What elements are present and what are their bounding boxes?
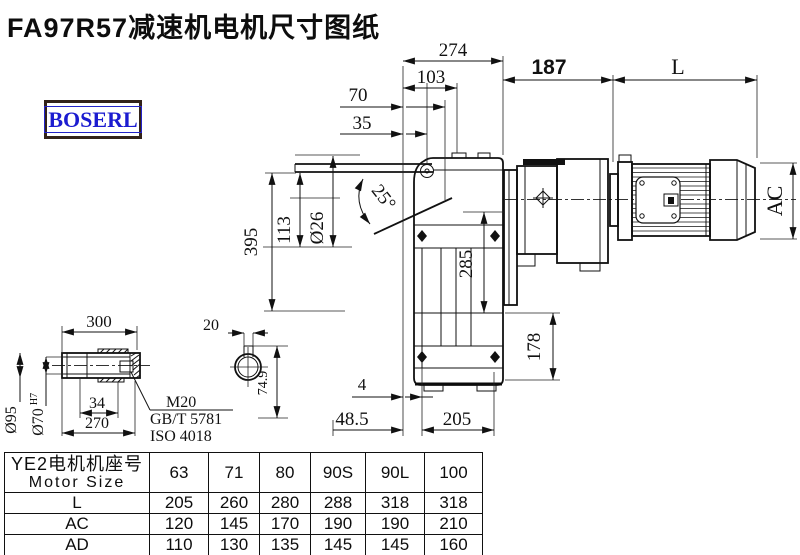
bolt-mark-top-left: [417, 230, 427, 242]
dim-20-label: 20: [203, 317, 219, 334]
bolt-note-gbt: GB/T 5781: [150, 411, 222, 428]
cell-AD-90L: 145: [366, 535, 425, 555]
dim-70-label: 70: [349, 85, 368, 106]
cell-AC-90S: 190: [311, 514, 366, 535]
dim-74-9-label: 74.9: [256, 371, 271, 396]
cell-L-63: 205: [150, 493, 209, 514]
cell-L-90S: 288: [311, 493, 366, 514]
table-row-L: L 205 260 280 288 318 318: [5, 493, 483, 514]
col-90S: 90S: [311, 453, 366, 493]
table-header-en: Motor Size: [5, 474, 149, 491]
cell-AD-63: 110: [150, 535, 209, 555]
cell-AC-71: 145: [209, 514, 260, 535]
r57-foot: [580, 263, 600, 271]
cell-L-71: 260: [209, 493, 260, 514]
col-100: 100: [425, 453, 483, 493]
table-row-AC: AC 120 145 170 190 190 210: [5, 514, 483, 535]
col-90L: 90L: [366, 453, 425, 493]
angle-arc-25: [359, 179, 370, 224]
dim-285-label: 285: [456, 250, 477, 279]
dim-4-label: 4: [358, 375, 367, 394]
dim-phi95-label: Ø95: [3, 406, 20, 434]
motor-flange-bell: [618, 162, 632, 240]
col-71: 71: [209, 453, 260, 493]
dim-phi70-label: Ø70: [30, 408, 47, 436]
table-header-cn: YE2电机机座号: [5, 455, 149, 474]
dim-phi70-tolerance-label: H7: [29, 393, 40, 405]
cell-AD-80: 135: [260, 535, 311, 555]
r57-flange-plate: [504, 170, 517, 305]
table-header-cell: YE2电机机座号 Motor Size: [5, 453, 150, 493]
col-63: 63: [150, 453, 209, 493]
dim-35-label: 35: [353, 113, 372, 134]
motor-fan-cowl: [710, 160, 755, 240]
drawing-sheet: FA97R57减速机电机尺寸图纸 BOSERL: [0, 0, 800, 555]
dim-48-5-label: 48.5: [335, 409, 368, 430]
dim-395-label: 395: [241, 228, 262, 257]
cell-AC-63: 120: [150, 514, 209, 535]
plate-detail-dot: [668, 197, 674, 204]
col-80: 80: [260, 453, 311, 493]
dim-103-label: 103: [417, 67, 446, 88]
dim-274-label: 274: [439, 40, 468, 61]
motor-size-table: YE2电机机座号 Motor Size 63 71 80 90S 90L 100…: [4, 452, 483, 555]
cell-AC-100: 210: [425, 514, 483, 535]
row-label-L: L: [5, 493, 150, 514]
dim-270-label: 270: [85, 415, 109, 432]
shaft-bolt-head: [120, 361, 133, 372]
bolt-note-m20: M20: [166, 394, 196, 411]
motor-flange-ring: [610, 174, 618, 226]
row-label-AD: AD: [5, 535, 150, 555]
table-header-row: YE2电机机座号 Motor Size 63 71 80 90S 90L 100: [5, 453, 483, 493]
dim-187-label: 187: [531, 56, 566, 79]
dim-300-label: 300: [86, 312, 112, 331]
dim-25deg-label: 25°: [367, 181, 400, 215]
cell-L-100: 318: [425, 493, 483, 514]
row-label-AC: AC: [5, 514, 150, 535]
cell-AD-90S: 145: [311, 535, 366, 555]
cell-L-80: 280: [260, 493, 311, 514]
extension-lines: [46, 56, 797, 436]
dim-phi26-label: Ø26: [307, 212, 328, 245]
r57-bottom-step: [517, 254, 535, 266]
r57-body-left: [517, 166, 557, 254]
cell-AD-100: 160: [425, 535, 483, 555]
bolt-mark-bottom-right: [490, 351, 500, 363]
dim-178-label: 178: [524, 333, 545, 362]
dim-205-label: 205: [443, 409, 472, 430]
table-row-AD: AD 110 130 135 145 145 160: [5, 535, 483, 555]
bolt-mark-bottom-left: [417, 351, 427, 363]
cell-L-90L: 318: [366, 493, 425, 514]
bolt-note-iso: ISO 4018: [150, 428, 212, 445]
dim-113-label: 113: [274, 216, 295, 244]
cell-AC-90L: 190: [366, 514, 425, 535]
r57-top-band: [523, 159, 565, 165]
dim-L-label: L: [671, 54, 684, 79]
bolt-mark-top-right: [490, 230, 500, 242]
dim-34-label: 34: [89, 395, 105, 412]
motor-eyebolt-lug: [619, 155, 631, 162]
torque-arm-hole: [421, 165, 434, 178]
dim-AC-label: AC: [762, 186, 787, 217]
cell-AD-71: 130: [209, 535, 260, 555]
cell-AC-80: 170: [260, 514, 311, 535]
